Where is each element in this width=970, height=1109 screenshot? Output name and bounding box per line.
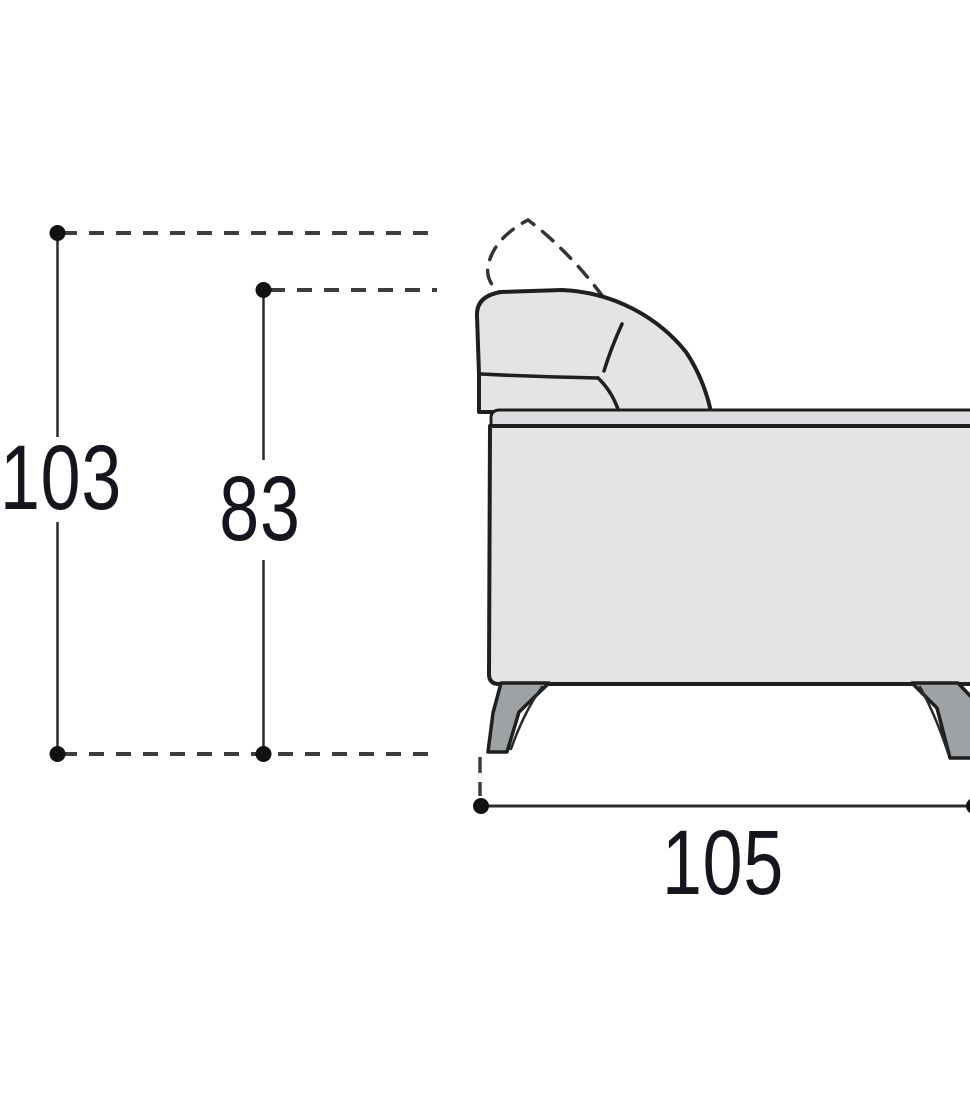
dimension-diagram-page: { "diagram": { "subject": "sofa-side-vie…: [0, 0, 970, 1109]
dot-depth-right: [966, 798, 970, 814]
rear-leg: [912, 683, 970, 758]
sofa-side-view: [477, 220, 970, 758]
dimension-label-overall-height: 103: [0, 432, 122, 524]
sofa-body: [489, 426, 970, 684]
dot-overall-height-bottom: [50, 746, 66, 762]
dot-backrest-height-bottom: [256, 746, 272, 762]
seat-rail: [491, 410, 970, 426]
dot-overall-height-top: [50, 225, 66, 241]
sofa-backrest: [477, 290, 711, 412]
dot-depth-left: [473, 798, 489, 814]
dimension-label-backrest-height: 83: [219, 463, 300, 555]
front-leg: [488, 683, 549, 752]
diagram-canvas: [0, 0, 970, 1109]
dimension-label-depth: 105: [662, 817, 784, 909]
dot-backrest-height-top: [256, 282, 272, 298]
